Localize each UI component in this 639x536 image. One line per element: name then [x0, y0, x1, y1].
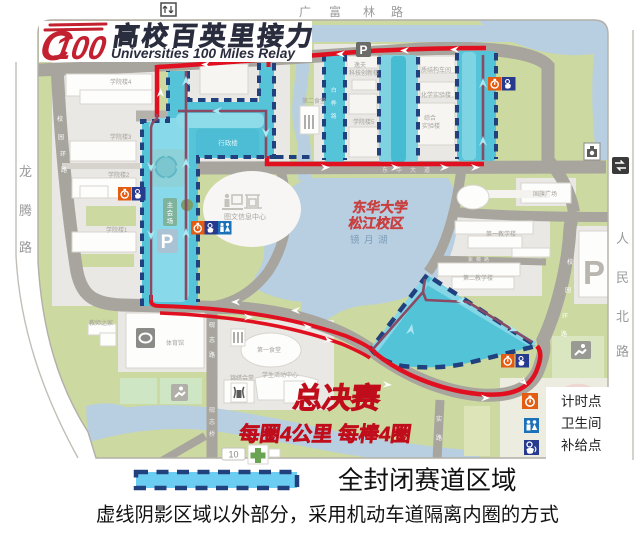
- svg-text:每圈4公里 每棒4圈: 每圈4公里 每棒4圈: [238, 422, 413, 446]
- svg-text:环: 环: [60, 151, 66, 158]
- svg-text:第一食堂: 第一食堂: [257, 346, 281, 354]
- svg-text:志: 志: [209, 418, 215, 426]
- svg-text:化学实验楼: 化学实验楼: [421, 91, 451, 99]
- svg-text:人: 人: [616, 231, 629, 246]
- svg-text:广: 广: [299, 5, 311, 19]
- svg-text:第一教学楼: 第一教学楼: [486, 230, 516, 238]
- svg-text:行政楼: 行政楼: [218, 138, 238, 147]
- svg-text:实验楼: 实验楼: [422, 122, 440, 130]
- svg-text:P: P: [359, 43, 367, 57]
- svg-text:虚线阴影区域以外部分，采用机动车道隔离内圈的方式: 虚线阴影区域以外部分，采用机动车道隔离内圈的方式: [96, 504, 559, 526]
- svg-text:国旗广场: 国旗广场: [533, 190, 557, 198]
- svg-text:体育馆: 体育馆: [166, 339, 184, 347]
- svg-text:砚: 砚: [209, 322, 215, 329]
- svg-text:大: 大: [410, 166, 416, 174]
- svg-text:镜: 镜: [350, 234, 360, 246]
- svg-text:腾: 腾: [19, 203, 32, 218]
- svg-text:路: 路: [436, 434, 442, 442]
- svg-text:路: 路: [209, 351, 215, 359]
- svg-text:第二教学楼: 第二教学楼: [463, 274, 493, 282]
- svg-text:校: 校: [567, 258, 573, 266]
- svg-text:综合: 综合: [424, 114, 436, 122]
- svg-text:道: 道: [424, 166, 430, 174]
- svg-text:实: 实: [436, 415, 442, 423]
- svg-text:补给点: 补给点: [561, 438, 602, 453]
- svg-text:路: 路: [61, 166, 67, 174]
- svg-text:东: 东: [382, 166, 388, 174]
- svg-text:锦绣会堂: 锦绣会堂: [230, 374, 254, 382]
- svg-text:松江校区: 松江校区: [348, 215, 406, 231]
- svg-text:砚: 砚: [209, 407, 215, 414]
- svg-text:湖: 湖: [378, 235, 388, 246]
- svg-text:P: P: [583, 254, 605, 291]
- svg-text:东华大学: 东华大学: [352, 199, 410, 215]
- svg-text:学生活动中心: 学生活动中心: [262, 371, 298, 379]
- svg-text:Universities 100 Miles Relay: Universities 100 Miles Relay: [111, 46, 296, 61]
- svg-text:桦: 桦: [331, 99, 337, 107]
- svg-text:路: 路: [391, 4, 403, 19]
- svg-text:质结构车间: 质结构车间: [421, 66, 451, 74]
- svg-text:路: 路: [331, 112, 337, 120]
- svg-text:图文信息中心: 图文信息中心: [224, 212, 266, 221]
- svg-text:P: P: [161, 232, 174, 253]
- svg-text:场: 场: [167, 216, 174, 225]
- svg-text:学院楼5: 学院楼5: [353, 118, 375, 126]
- svg-text:逸夫: 逸夫: [354, 61, 366, 69]
- svg-text:林: 林: [363, 5, 375, 19]
- svg-text:第二食堂: 第二食堂: [302, 97, 326, 105]
- svg-text:学院楼2: 学院楼2: [108, 171, 130, 179]
- svg-text:薇: 薇: [476, 256, 481, 263]
- svg-text:紫: 紫: [468, 257, 473, 263]
- svg-text:园: 园: [58, 134, 64, 141]
- svg-text:园: 园: [565, 287, 571, 294]
- svg-text:学院楼3: 学院楼3: [110, 133, 132, 141]
- svg-text:卫生间: 卫生间: [561, 416, 602, 431]
- svg-text:白: 白: [331, 86, 337, 94]
- svg-text:10: 10: [228, 450, 238, 460]
- svg-text:路: 路: [616, 344, 629, 359]
- svg-text:路: 路: [19, 240, 32, 255]
- svg-text:志: 志: [209, 336, 215, 344]
- svg-text:教师之家: 教师之家: [89, 319, 113, 327]
- svg-text:月: 月: [364, 235, 374, 246]
- svg-text:主: 主: [167, 200, 174, 209]
- svg-text:学院楼1: 学院楼1: [106, 226, 128, 234]
- svg-text:100: 100: [51, 30, 109, 67]
- svg-text:民: 民: [616, 270, 629, 285]
- svg-text:会: 会: [167, 208, 174, 217]
- svg-text:北: 北: [616, 309, 629, 324]
- svg-text:科技创新楼: 科技创新楼: [349, 69, 379, 77]
- svg-text:环: 环: [562, 313, 568, 320]
- svg-text:全封闭赛道区域: 全封闭赛道区域: [338, 467, 517, 495]
- svg-text:路: 路: [484, 256, 489, 263]
- svg-text:龙: 龙: [19, 164, 32, 179]
- svg-text:总决赛: 总决赛: [291, 381, 384, 415]
- svg-text:计时点: 计时点: [561, 394, 602, 409]
- svg-text:校: 校: [57, 115, 63, 123]
- svg-text:桥: 桥: [209, 430, 215, 438]
- svg-text:学院楼4: 学院楼4: [110, 78, 132, 86]
- svg-text:路: 路: [561, 330, 567, 338]
- svg-text:富: 富: [329, 4, 341, 19]
- svg-text:华: 华: [396, 166, 402, 174]
